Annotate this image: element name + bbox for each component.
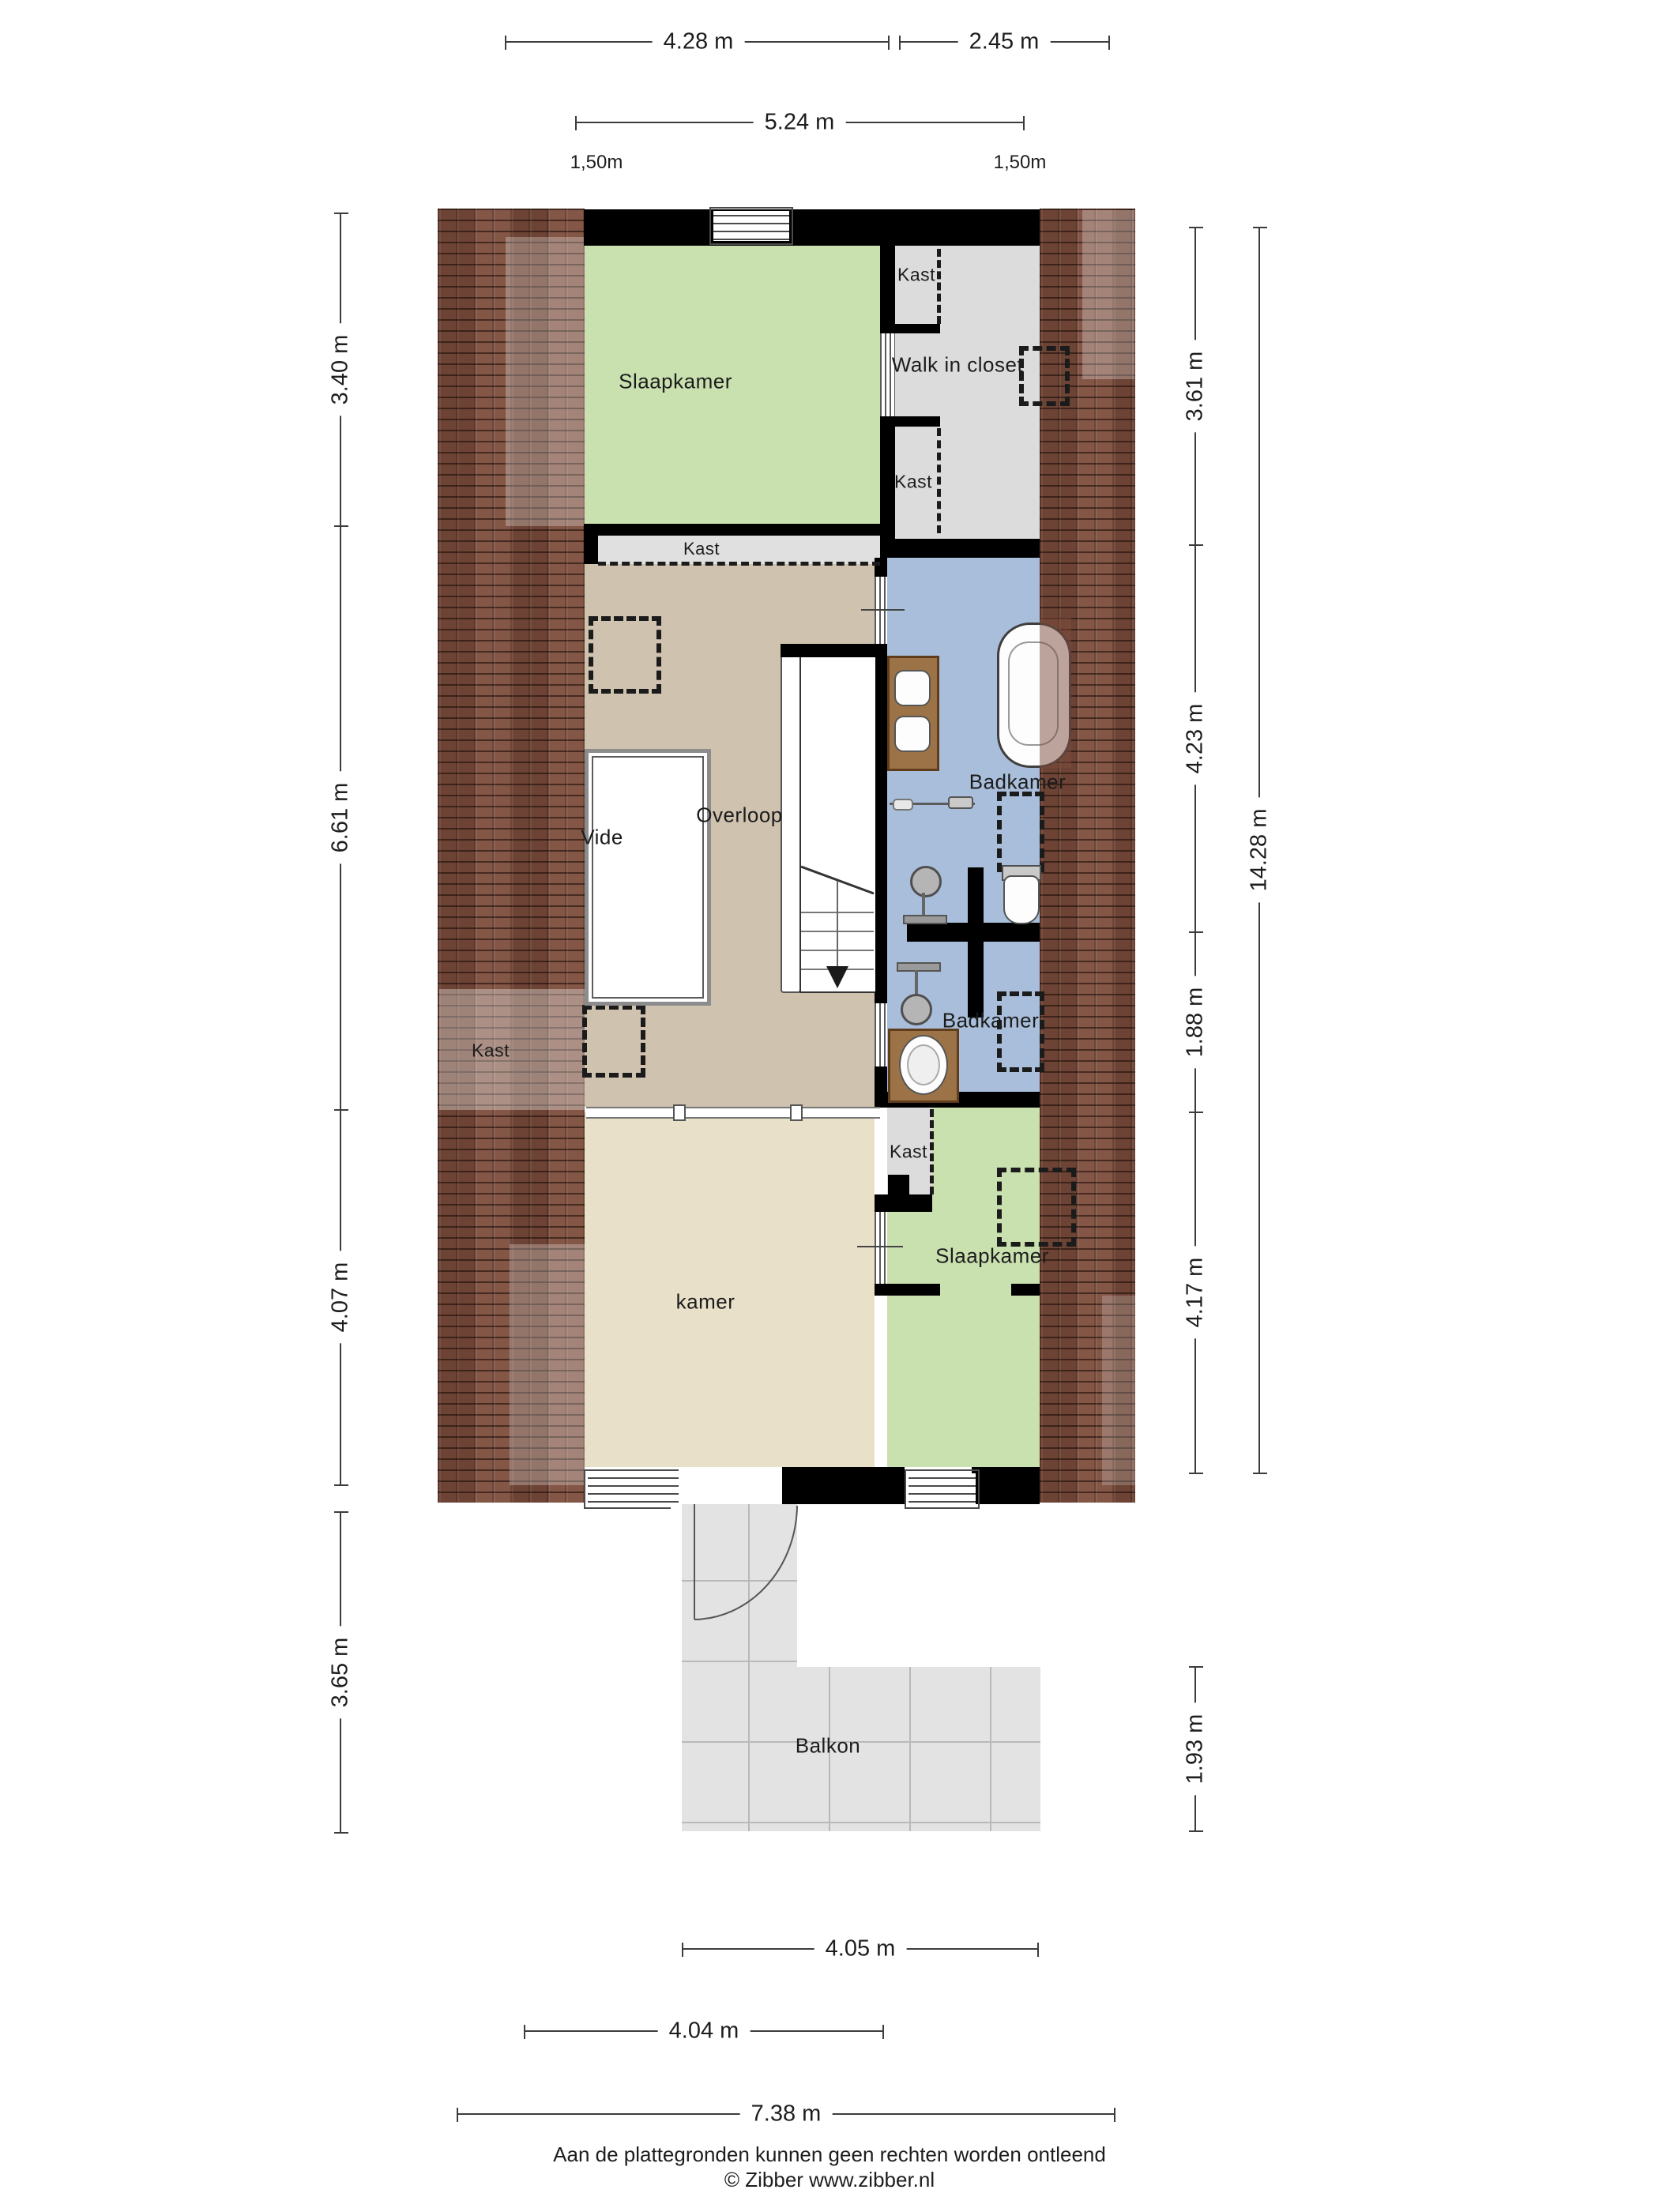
floor-plan: Vide	[0, 0, 1659, 2212]
wall	[880, 246, 895, 333]
kast-front-dashed	[930, 1109, 934, 1194]
wall-stub	[875, 1284, 940, 1296]
wall-stub	[895, 416, 940, 427]
room-label: Walk in closet	[892, 353, 1023, 378]
wall	[888, 1175, 909, 1194]
room-label: Slaapkamer	[619, 370, 732, 394]
dim-label: 7.38 m	[740, 2101, 833, 2127]
door-overloop-badkamer2	[875, 1003, 887, 1066]
shower-mixer	[903, 915, 947, 924]
dim-label: 1.88 m	[1183, 976, 1209, 1069]
kast-front-dashed	[598, 562, 880, 566]
glass-partition	[586, 1107, 880, 1119]
shower-head	[910, 866, 942, 897]
towel-bar-end	[893, 799, 913, 811]
wall-stub	[895, 324, 940, 333]
room-label: Kast	[472, 1040, 510, 1062]
kast-front-dashed	[937, 249, 941, 324]
wall-stub	[1011, 1284, 1040, 1296]
dim-label: 4.28 m	[653, 29, 745, 55]
room-walk-in-closet	[895, 246, 1040, 539]
dim-label: 4.04 m	[658, 2018, 750, 2045]
wall	[880, 539, 1040, 558]
room-label: Kast	[897, 265, 935, 286]
dim-label: 5.24 m	[754, 110, 846, 136]
roof-highlight	[1102, 1296, 1135, 1485]
tick-line	[857, 1246, 903, 1247]
partition-post	[790, 1104, 803, 1121]
dim-label: 3.61 m	[1183, 340, 1209, 433]
dim-label: 4.23 m	[1183, 693, 1209, 785]
bathtub-roof-shade	[1040, 618, 1071, 768]
balkon-door-arc	[668, 1499, 826, 1634]
room-kast-strip	[598, 536, 880, 564]
dim-label: 3.65 m	[328, 1627, 354, 1719]
wardrobe-dashed-slaapkamer	[997, 1168, 1076, 1247]
room-label: Balkon	[796, 1734, 861, 1759]
balkon-door-opening	[679, 1467, 782, 1504]
room-label: Kast	[894, 472, 932, 493]
roof-highlight	[1082, 210, 1134, 379]
room-label: kamer	[676, 1290, 735, 1315]
copyright-text: © Zibber www.zibber.nl	[724, 2168, 935, 2192]
kast-front-dashed	[937, 428, 941, 533]
dim-label: 1.93 m	[1183, 1703, 1209, 1796]
shower-head	[901, 994, 932, 1025]
wall-top	[584, 209, 1040, 246]
tick-line	[861, 609, 905, 611]
disclaimer-text: Aan de plattegronden kunnen geen rechten…	[553, 2142, 1106, 2167]
dim-label: 3.40 m	[328, 324, 354, 416]
shower-mixer	[897, 962, 941, 972]
wall	[875, 1194, 932, 1212]
wall	[880, 416, 895, 558]
dim-label: 1,50m	[994, 152, 1047, 174]
dim-label: 4.07 m	[328, 1251, 354, 1344]
dim-label: 4.05 m	[814, 1936, 907, 1962]
room-label: Vide	[581, 826, 623, 850]
stairs-steps	[781, 644, 887, 994]
dormer-dashed	[582, 1005, 645, 1078]
balkon: Balkon	[668, 1499, 1063, 1844]
vide-opening	[585, 749, 711, 1006]
sink	[894, 716, 931, 752]
room-label: Badkamer	[969, 770, 1066, 795]
dim-label: 4.17 m	[1183, 1247, 1209, 1339]
wall	[875, 558, 887, 577]
stairs	[781, 644, 887, 994]
toilet-seat	[907, 1044, 940, 1085]
towel-bar-handle	[948, 796, 973, 809]
wall-bottom	[972, 1467, 1040, 1504]
dim-label: 2.45 m	[958, 29, 1051, 55]
wall-bottom	[782, 1467, 905, 1504]
shower-rod	[915, 970, 918, 997]
wall	[584, 524, 880, 536]
dim-label: 6.61 m	[328, 772, 354, 864]
dormer-dashed	[589, 616, 661, 694]
room-label: Kast	[683, 539, 720, 559]
room-label: Badkamer	[942, 1009, 1040, 1033]
door-kamer-slaapkamer	[875, 1212, 887, 1284]
dim-label: 14.28 m	[1247, 798, 1273, 903]
dim-label: 1,50m	[570, 152, 623, 174]
window-top	[709, 207, 793, 245]
wall	[968, 867, 984, 1018]
room-label: Overloop	[696, 803, 783, 828]
shower-dashed-boven	[997, 792, 1044, 872]
toilet-bowl	[1003, 875, 1040, 924]
wardrobe-dashed-walkin	[1019, 346, 1070, 406]
roof-highlight	[510, 1244, 585, 1485]
wall	[584, 524, 598, 564]
sink	[894, 670, 931, 706]
roof-highlight	[439, 989, 585, 1110]
partition-post	[673, 1104, 686, 1121]
roof-highlight	[506, 237, 585, 526]
room-label: Kast	[890, 1142, 927, 1163]
room-label: Slaapkamer	[935, 1244, 1049, 1269]
